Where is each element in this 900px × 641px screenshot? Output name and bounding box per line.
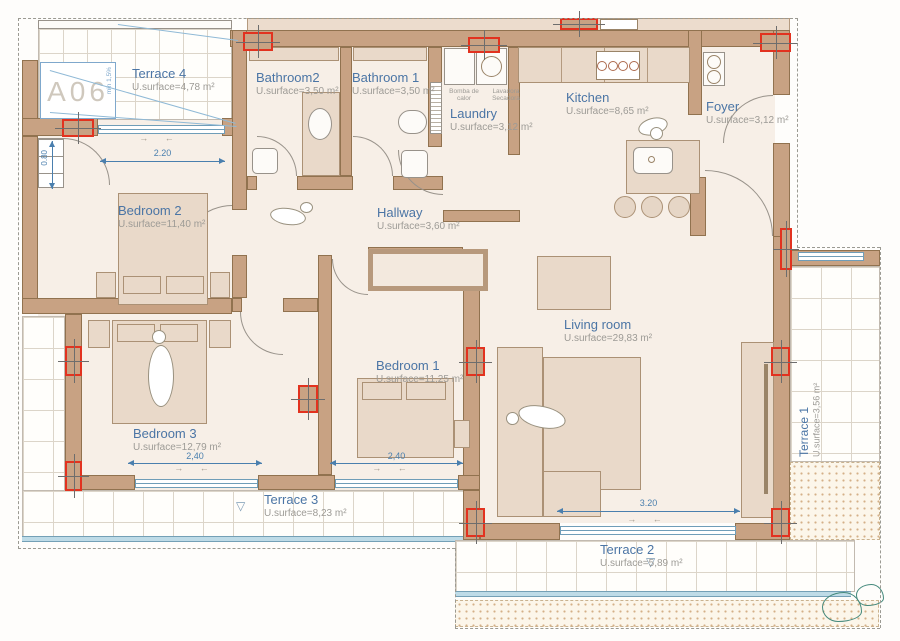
- terrace3-side-tiles: [22, 316, 65, 492]
- wall-bedroom1-bottom: [458, 475, 480, 490]
- room-name: Bathroom 1: [352, 70, 435, 86]
- column-4: [560, 18, 598, 30]
- dim-line-terrace4: [100, 161, 225, 162]
- dim-label-living: 3.20: [557, 498, 740, 508]
- bathroom1-sink: [398, 110, 427, 134]
- window-living: [560, 526, 736, 535]
- terrace4-railing: [38, 20, 232, 29]
- column-5: [760, 33, 791, 52]
- room-label-terrace3: Terrace 3 U.surface=8,23 m²: [264, 492, 347, 520]
- room-surface: U.surface=3,12 m²: [450, 122, 533, 134]
- window-bedroom3: [135, 479, 258, 488]
- room-label-terrace1: Terrace 1 U.surface=3,56 m²: [797, 332, 822, 457]
- room-label-terrace4: Terrace 4 U.surface=4,78 m²: [132, 66, 215, 94]
- room-surface: U.surface=5,89 m²: [600, 558, 683, 570]
- tv-cabinet: [741, 342, 774, 518]
- window-bedroom1: [335, 479, 458, 488]
- terrace3-tiles: [22, 490, 470, 537]
- room-label-laundry: Laundry U.surface=3,12 m²: [450, 106, 533, 134]
- room-label-kitchen: Kitchen U.surface=8,65 m²: [566, 90, 649, 118]
- boundary-right-upper: [797, 18, 798, 248]
- room-name: Hallway: [377, 205, 460, 221]
- wall-bath-bottom-a: [247, 176, 257, 190]
- bedroom2-pillow-2: [166, 276, 204, 294]
- bedroom2-nightstand-2: [210, 272, 230, 298]
- boundary-step-right: [797, 247, 880, 248]
- column-3: [468, 37, 500, 53]
- boundary-right: [880, 247, 881, 628]
- wall-bedroom3-top-a: [232, 298, 242, 312]
- room-surface: U.surface=3,50 m²: [256, 86, 339, 98]
- room-name: Laundry: [450, 106, 533, 122]
- wall-top: [230, 30, 790, 47]
- column-10: [771, 508, 790, 537]
- room-surface: U.surface=4,78 m²: [132, 82, 215, 94]
- room-name: Foyer: [706, 99, 789, 115]
- wall-bedroom3-bedroom1: [318, 255, 332, 475]
- column-9: [466, 508, 485, 537]
- stool-3: [668, 196, 690, 218]
- room-name: Bedroom 2: [118, 203, 205, 219]
- room-label-bedroom1: Bedroom 1 U.surface=11,25 m²: [376, 358, 463, 386]
- room-name: Terrace 2: [600, 542, 683, 558]
- open-arrows-bedroom1: → ←: [358, 463, 428, 473]
- room-label-bathroom2: Bathroom2 U.surface=3,50 m²: [256, 70, 339, 98]
- dim-line-living: [557, 511, 740, 512]
- column-11: [65, 346, 82, 376]
- bathroom2-sink: [308, 108, 332, 140]
- wall-bedroom2-right-upper: [232, 30, 247, 210]
- room-label-foyer: Foyer U.surface=3,12 m²: [706, 99, 789, 127]
- room-surface: U.surface=3,50 m²: [352, 86, 435, 98]
- column-1: [62, 119, 94, 137]
- wall-left-outer: [22, 136, 38, 314]
- bedroom2-pillow-1: [123, 276, 161, 294]
- terrace2-railing: [455, 591, 851, 597]
- room-label-bedroom2: Bedroom 2 U.surface=11,40 m²: [118, 203, 205, 231]
- boundary-top: [18, 18, 798, 19]
- room-surface: U.surface=3,56 m²: [811, 332, 822, 457]
- room-surface: U.surface=12,79 m²: [133, 442, 221, 454]
- column-13: [298, 385, 318, 413]
- dim-label-terrace4: 2.20: [100, 148, 225, 158]
- hall-wardrobe: [368, 249, 488, 291]
- boundary-bottom-left: [18, 548, 455, 549]
- room-surface: U.surface=8,65 m²: [566, 106, 649, 118]
- column-8: [771, 347, 790, 376]
- room-label-terrace2: Terrace 2 U.surface=5,89 m²: [600, 542, 683, 570]
- room-surface: U.surface=8,23 m²: [264, 508, 347, 520]
- kitchen-stove-icon: [596, 51, 640, 80]
- laundry-heatpump: [444, 48, 475, 85]
- bathroom2-toilet: [252, 148, 278, 174]
- room-label-bedroom3: Bedroom 3 U.surface=12,79 m²: [133, 426, 221, 454]
- wall-bath-bottom-b: [297, 176, 353, 190]
- floor-plan: A06 min 1,5%: [0, 0, 900, 641]
- room-label-hallway: Hallway U.surface=3,60 m²: [377, 205, 460, 233]
- wall-kitchen-foyer-upper: [688, 30, 702, 115]
- bedroom1-nightstand: [454, 420, 470, 448]
- room-surface: U.surface=3,12 m²: [706, 115, 789, 127]
- wall-living-bottom-a: [480, 523, 560, 540]
- dog-head: [300, 202, 313, 213]
- bedroom2-nightstand-1: [96, 272, 116, 298]
- slope-note: min 1,5%: [106, 67, 113, 94]
- bedroom3-nightstand-2: [209, 320, 231, 348]
- room-name: Bedroom 1: [376, 358, 463, 374]
- room-name: Terrace 3: [264, 492, 347, 508]
- window-terrace1: [798, 252, 864, 261]
- open-arrows-terrace4: → ←: [125, 133, 195, 143]
- column-12: [65, 461, 82, 491]
- laundry-appliance-label-2: Lavadora Secadora: [484, 88, 528, 103]
- terrace3-railing: [22, 536, 470, 542]
- sofa-chaise: [497, 347, 543, 517]
- wall-bedroom3-bottom-b: [258, 475, 335, 490]
- open-arrows-bedroom3: → ←: [160, 463, 230, 473]
- garden-bottom: [455, 600, 879, 627]
- bedroom3-nightstand-1: [88, 320, 110, 348]
- level-marker-terrace3: ▽: [236, 500, 245, 512]
- dining-table: [537, 256, 611, 310]
- column-7: [466, 347, 485, 376]
- room-surface: U.surface=29,83 m²: [564, 333, 652, 345]
- bedroom3-pillow-1: [117, 324, 155, 342]
- room-label-bathroom1: Bathroom 1 U.surface=3,50 m²: [352, 70, 435, 98]
- neighbor-stove-icon: [600, 19, 638, 30]
- bathroom1-toilet: [401, 150, 428, 178]
- bathroom1-shelf: [353, 47, 427, 61]
- room-name: Living room: [564, 317, 652, 333]
- room-surface: U.surface=11,25 m²: [376, 374, 463, 386]
- room-name: Kitchen: [566, 90, 649, 106]
- column-6: [780, 228, 792, 270]
- stool-1: [614, 196, 636, 218]
- room-name: Bathroom2: [256, 70, 339, 86]
- wall-bath2-bath1: [340, 47, 352, 176]
- boundary-left: [18, 18, 19, 549]
- room-name: Terrace 4: [132, 66, 215, 82]
- wall-living-right: [773, 236, 790, 540]
- foyer-sink-bowl-1: [707, 55, 721, 69]
- laundry-appliance-label-1: Bomba de calor: [446, 88, 482, 103]
- column-2: [243, 32, 273, 51]
- wall-bedroom3-top-b: [283, 298, 318, 312]
- person-figure-bedroom3: [148, 345, 174, 407]
- garden-right: [790, 462, 880, 540]
- person-head-bedroom3: [152, 330, 166, 344]
- person-head-living: [506, 412, 519, 425]
- room-name: Bedroom 3: [133, 426, 221, 442]
- room-name: Terrace 1: [797, 332, 811, 457]
- foyer-sink-bowl-2: [707, 70, 721, 84]
- stool-2: [641, 196, 663, 218]
- person-head-kitchen: [650, 127, 663, 140]
- open-arrows-living: → ←: [613, 514, 683, 524]
- room-surface: U.surface=11,40 m²: [118, 219, 205, 231]
- room-surface: U.surface=3,60 m²: [377, 221, 460, 233]
- tv-screen: [764, 364, 768, 494]
- room-label-living: Living room U.surface=29,83 m²: [564, 317, 652, 345]
- dim-label-bedroom1: 2,40: [330, 451, 463, 461]
- wall-bedroom2-right-lower: [232, 255, 247, 298]
- island-faucet-icon: [648, 156, 655, 163]
- bedroom3-pillow-2: [160, 324, 198, 342]
- dim-line-closet: [52, 141, 53, 189]
- boundary-bottom: [455, 628, 880, 629]
- wall-foyer-right-lower: [773, 143, 790, 238]
- dim-label-closet: 0.80: [40, 150, 49, 166]
- boundary-step-bottom: [455, 548, 456, 628]
